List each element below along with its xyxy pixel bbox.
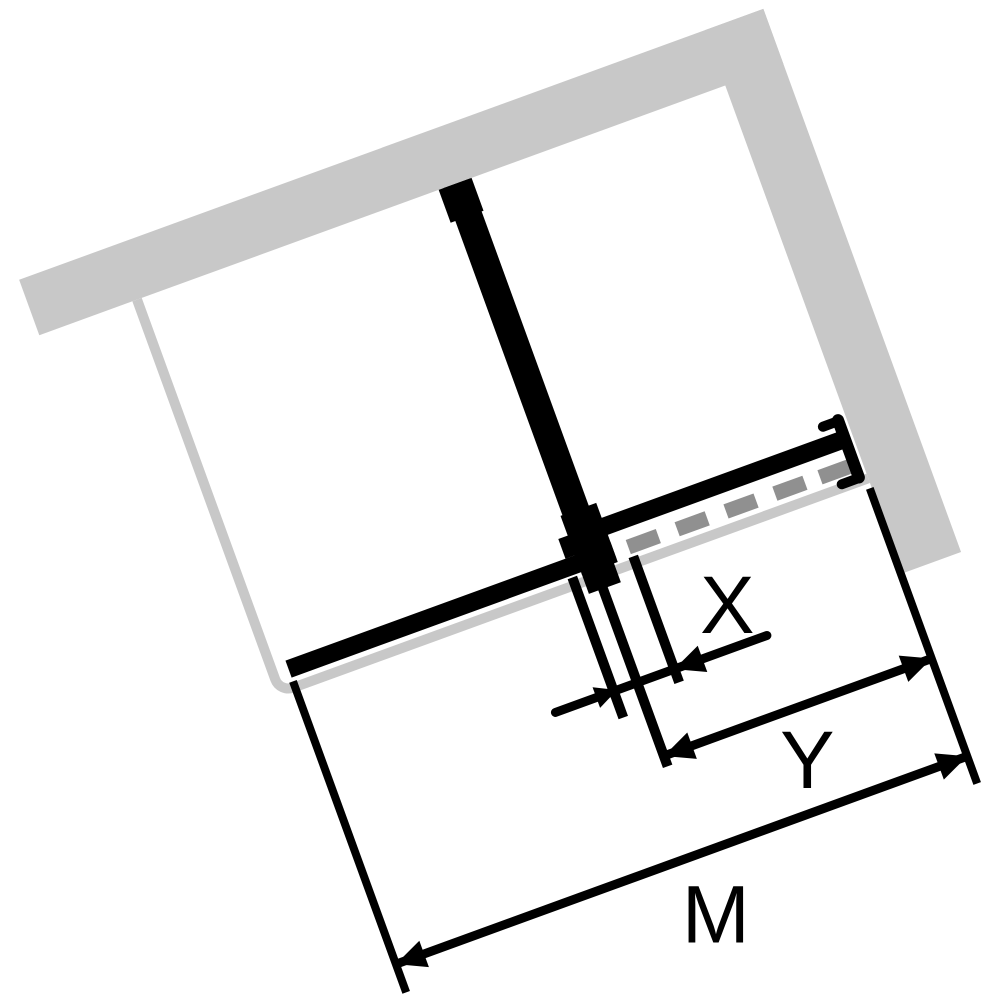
svg-text:Y: Y	[780, 715, 834, 806]
svg-text:M: M	[682, 870, 750, 961]
svg-text:X: X	[700, 560, 754, 651]
